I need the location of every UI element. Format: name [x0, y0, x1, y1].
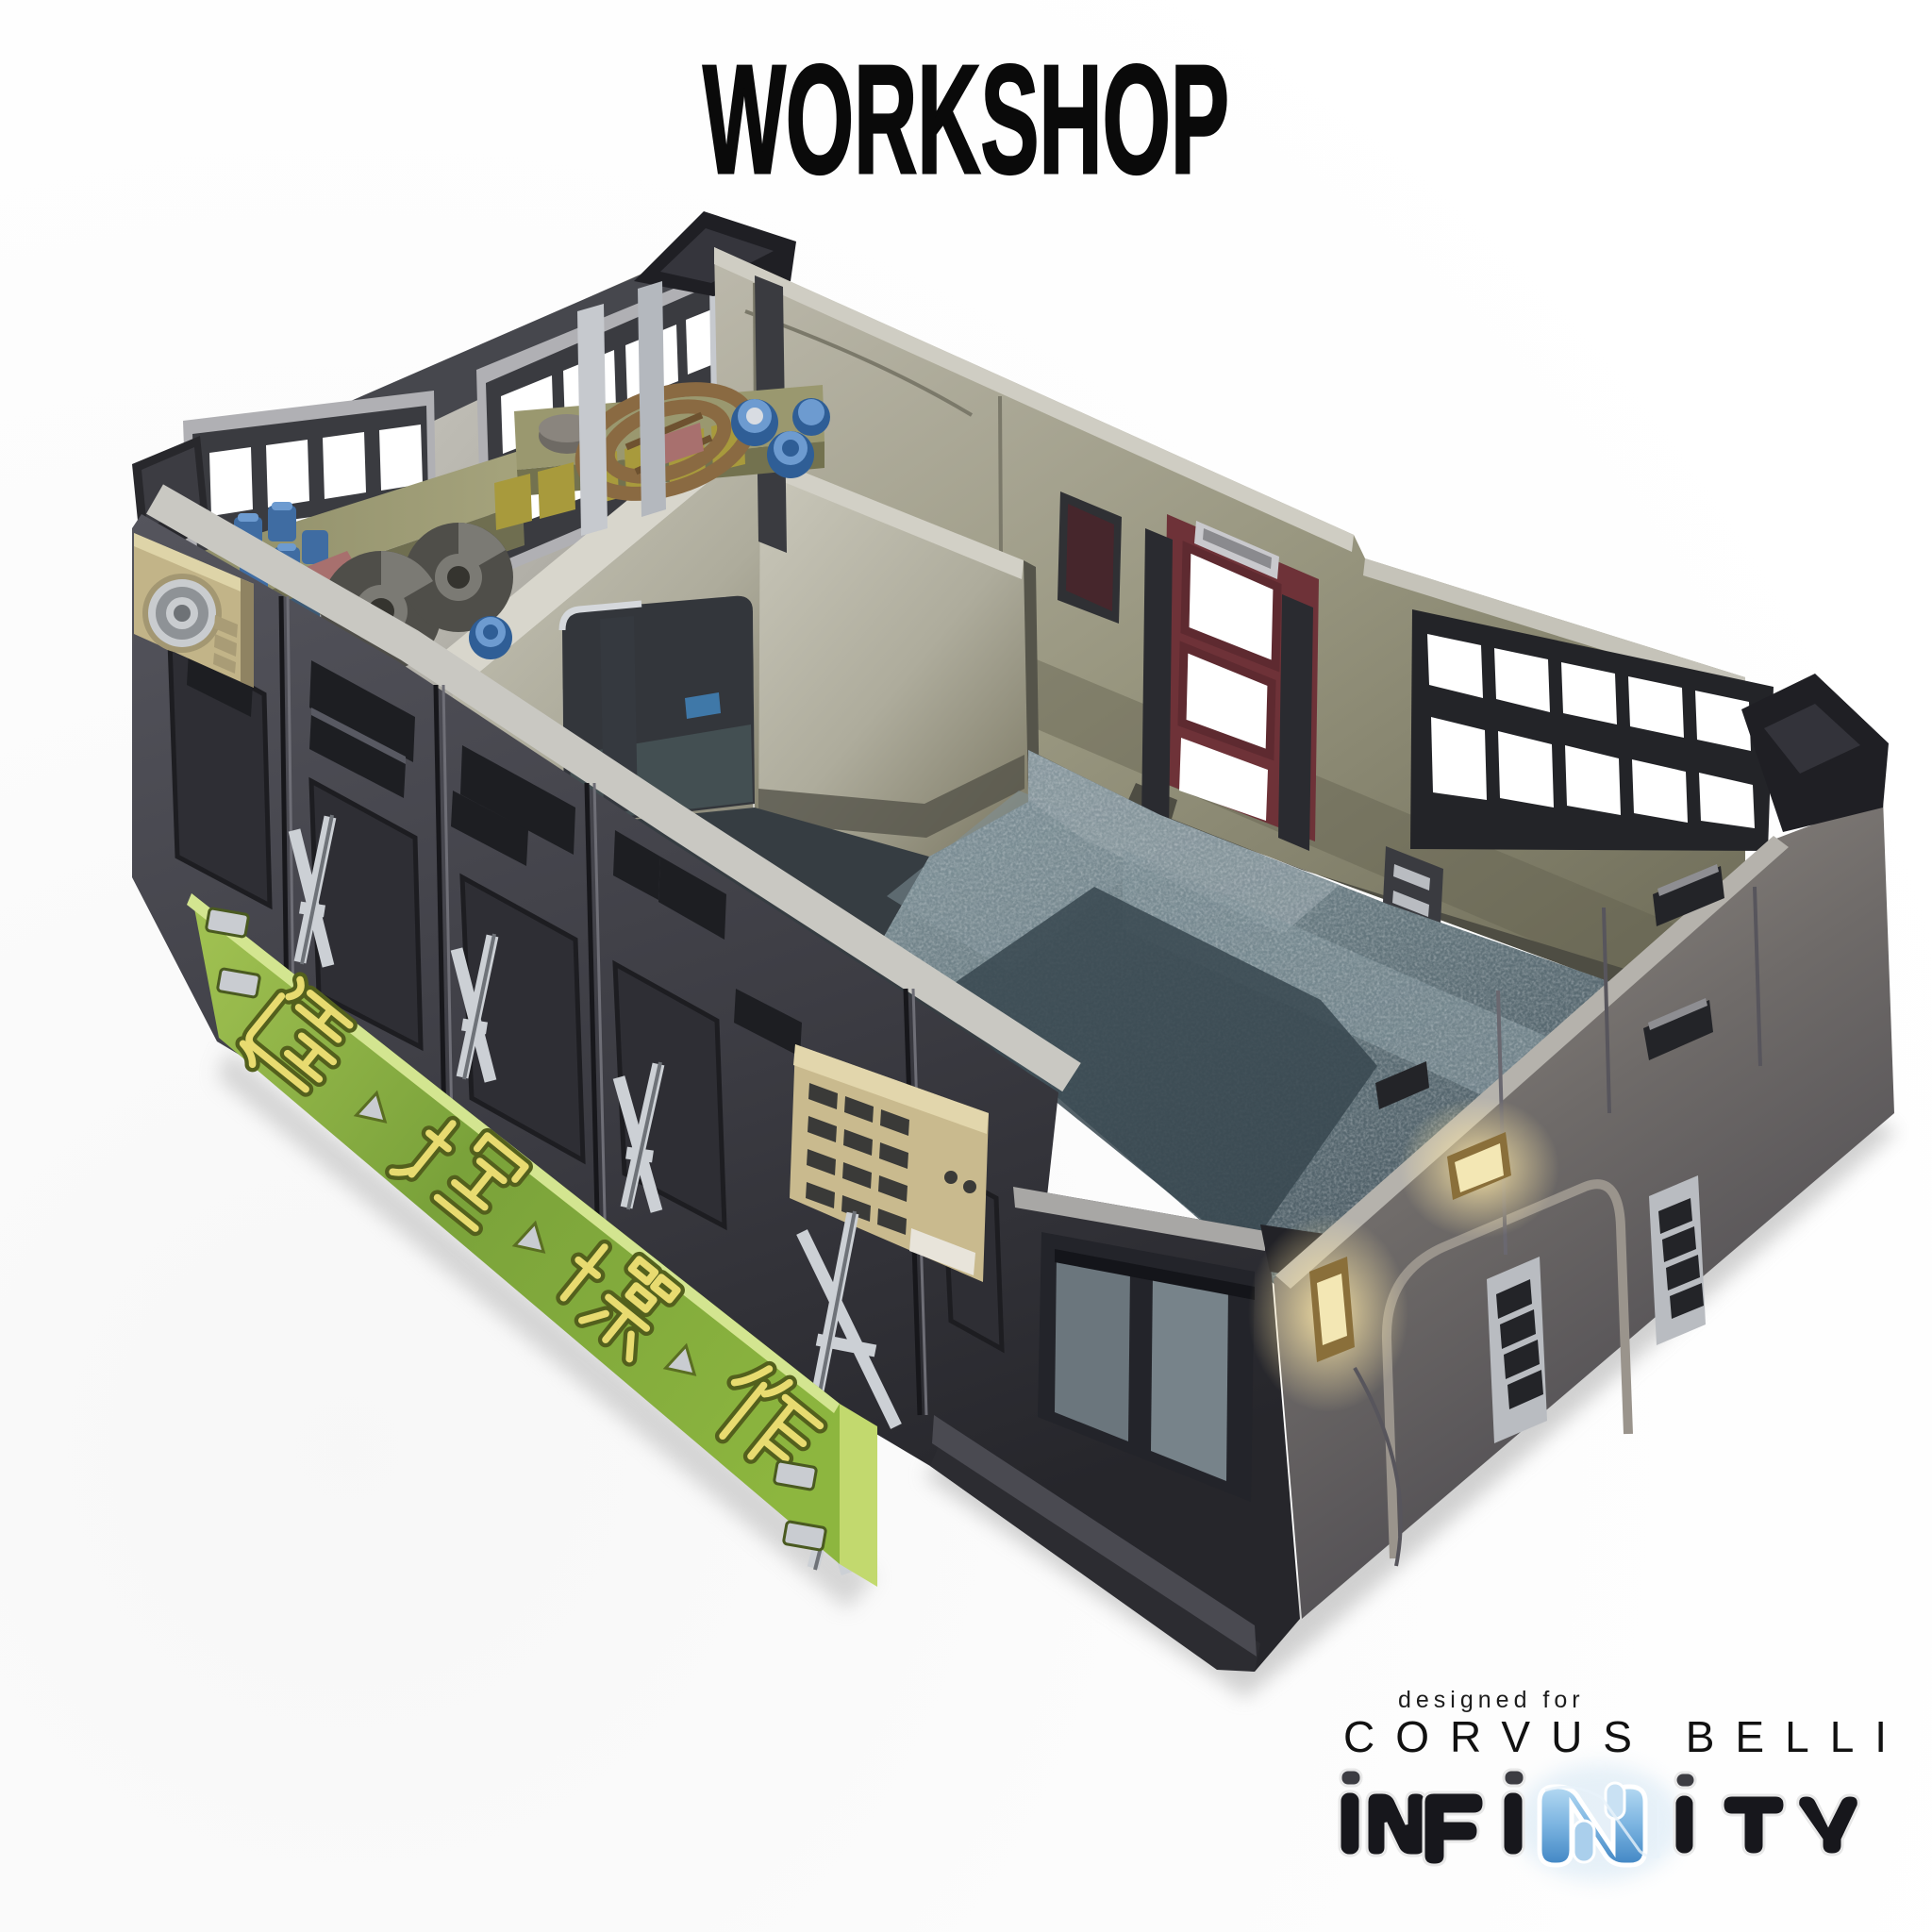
svg-text:WORKSHOP: WORKSHOP [703, 33, 1229, 206]
svg-text:CORVUS BELLI: CORVUS BELLI [1343, 1712, 1907, 1761]
svg-text:designed for: designed for [1398, 1687, 1585, 1713]
